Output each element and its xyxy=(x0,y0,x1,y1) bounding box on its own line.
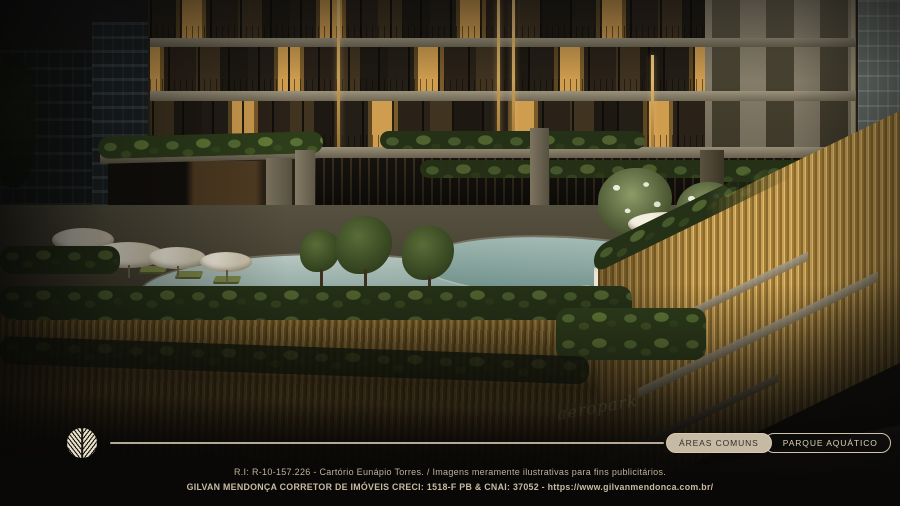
leaf-emblem-icon xyxy=(67,428,97,458)
floor-slab xyxy=(150,91,856,101)
concrete-column xyxy=(530,128,549,210)
corner-planting xyxy=(556,308,706,360)
divider-line xyxy=(110,442,664,444)
led-light-strip xyxy=(337,0,340,150)
building-floor xyxy=(150,0,705,39)
fence-top-planting xyxy=(0,286,632,320)
deck-planting xyxy=(0,246,120,274)
legal-registration-text: R.I: R-10-157.226 - Cartório Eunápio Tor… xyxy=(0,467,900,477)
palm-silhouette xyxy=(0,56,36,188)
tab-parque-aquatico[interactable]: PARQUE AQUÁTICO xyxy=(764,433,891,453)
leaf-emblem-stem xyxy=(81,428,83,458)
building-floor xyxy=(150,47,705,92)
section-nav: ÁREAS COMUNS PARQUE AQUÁTICO xyxy=(666,433,891,453)
umbrella xyxy=(148,247,206,269)
floor-slab xyxy=(150,38,856,47)
presentation-slide: aeropark ÁREAS COMUNS PARQUE AQUÁTICO R.… xyxy=(0,0,900,506)
legal-broker-text: GILVAN MENDONÇA CORRETOR DE IMÓVEIS CREC… xyxy=(0,482,900,492)
canopy-planting xyxy=(380,131,645,149)
umbrella xyxy=(200,252,252,272)
tab-areas-comuns[interactable]: ÁREAS COMUNS xyxy=(666,433,772,453)
led-light-strip xyxy=(651,55,654,160)
